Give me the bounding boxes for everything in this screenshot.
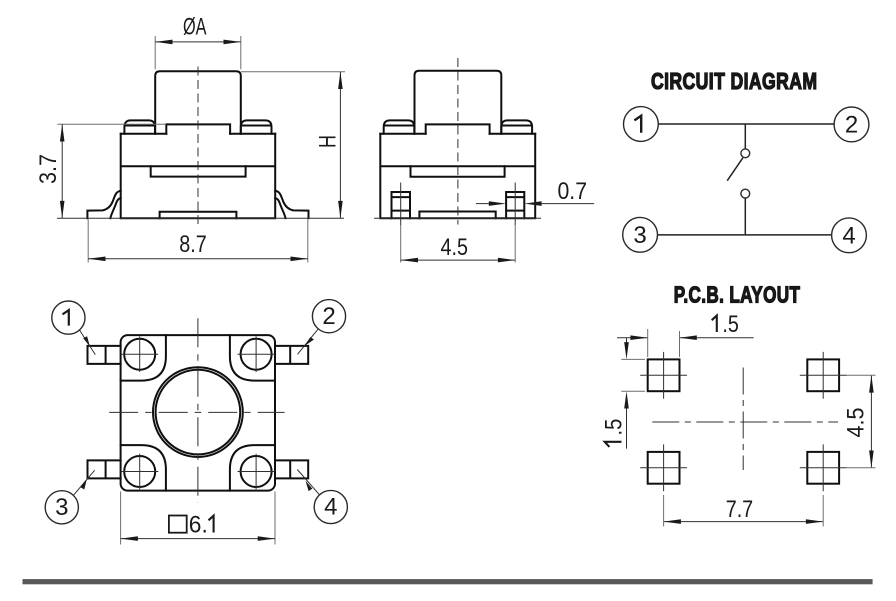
svg-text:P.C.B. LAYOUT: P.C.B. LAYOUT bbox=[674, 282, 801, 308]
svg-text:4: 4 bbox=[324, 494, 337, 521]
svg-text:2: 2 bbox=[845, 112, 858, 139]
svg-text:.5: .5 bbox=[722, 311, 739, 338]
svg-text:0.7: 0.7 bbox=[558, 178, 588, 205]
svg-text:4.5: 4.5 bbox=[843, 408, 870, 438]
svg-text:3: 3 bbox=[633, 222, 646, 249]
svg-text:4: 4 bbox=[842, 223, 855, 250]
svg-text:CIRCUIT DIAGRAM: CIRCUIT DIAGRAM bbox=[651, 68, 818, 94]
svg-text:2: 2 bbox=[322, 303, 335, 330]
svg-text:.5: .5 bbox=[601, 419, 628, 436]
svg-text:3.7: 3.7 bbox=[35, 154, 62, 184]
svg-text:4.5: 4.5 bbox=[441, 234, 469, 261]
svg-text:6.: 6. bbox=[189, 512, 208, 539]
svg-text:ØA: ØA bbox=[183, 14, 207, 41]
svg-text:8.7: 8.7 bbox=[179, 231, 207, 258]
svg-text:3: 3 bbox=[55, 494, 68, 521]
svg-text:H: H bbox=[314, 135, 341, 148]
svg-text:7.7: 7.7 bbox=[726, 496, 754, 523]
